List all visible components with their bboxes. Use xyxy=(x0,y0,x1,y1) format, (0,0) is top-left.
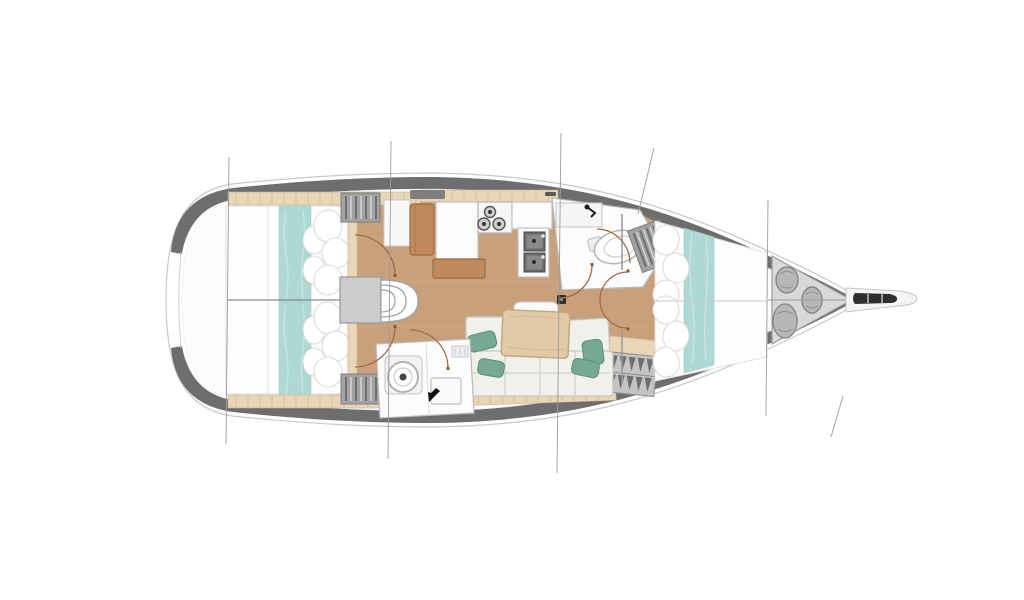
chart-table xyxy=(436,202,478,260)
dining-table xyxy=(501,310,570,359)
head-basin-counter xyxy=(556,203,602,227)
floor-plan-canvas xyxy=(0,0,1024,600)
nav-bench xyxy=(433,259,485,278)
berth-teal-runner xyxy=(279,206,311,300)
hanging-locker-aft-top xyxy=(341,193,380,222)
section-stub-bottom xyxy=(831,396,843,437)
galley-counter xyxy=(512,202,552,229)
aft-head xyxy=(376,339,474,418)
toilet-icon xyxy=(385,356,422,394)
berth-teal-runner xyxy=(279,300,311,394)
engine-box xyxy=(340,277,381,323)
companionway xyxy=(340,277,418,323)
deck-hatch xyxy=(410,190,445,199)
anchor-roller-icon xyxy=(853,293,897,304)
aft-cabin-port-berth xyxy=(226,300,357,394)
galley-handle xyxy=(545,192,556,196)
yacht-floor-plan xyxy=(0,0,1024,600)
nav-seat xyxy=(410,204,434,255)
aft-cabin-starboard-berth xyxy=(226,206,357,300)
hanging-locker-aft-bottom xyxy=(341,374,380,404)
bowsprit xyxy=(846,288,917,312)
cabinet-trim-galley xyxy=(410,190,558,202)
locker-cabinet xyxy=(384,200,410,246)
